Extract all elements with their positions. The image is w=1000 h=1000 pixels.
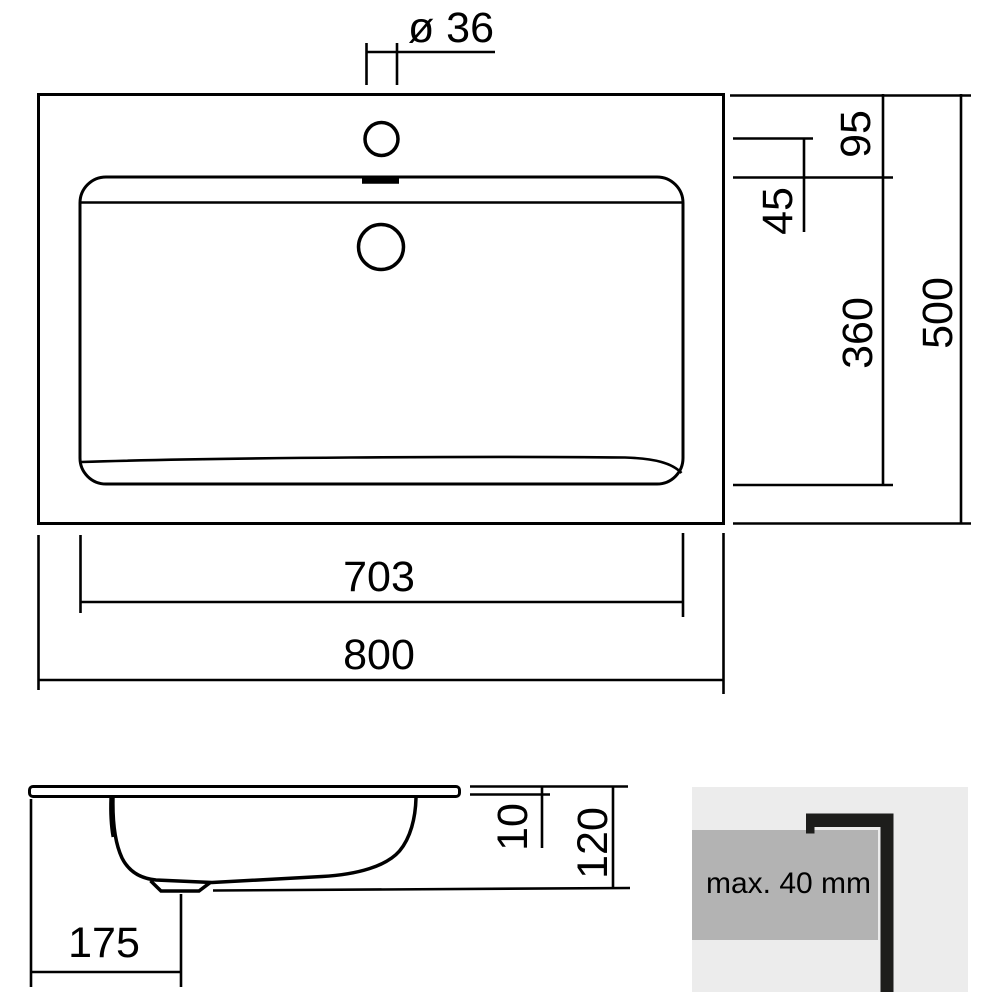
washbasin-technical-drawing: ø 36 45 95 360 500 703 800 [0,0,1000,1000]
label-120: 120 [569,807,617,879]
label-95: 95 [832,110,880,158]
rim-slab [30,787,460,797]
dim-side-view: 175 10 120 [31,787,628,988]
label-703: 703 [343,553,415,601]
dim-faucet-diameter: ø 36 [367,4,496,85]
faucet-hole [365,123,398,156]
label-max-40mm: max. 40 mm [706,867,871,900]
detail-inset: max. 40 mm [692,787,968,992]
faucet-diameter-label: ø 36 [408,4,494,52]
dim-bottom: 703 800 [39,533,724,694]
label-45: 45 [754,187,802,235]
label-175: 175 [68,919,140,967]
bowl-profile [113,797,416,883]
dim-right-side: 45 95 360 500 [730,94,971,524]
ext-bowl-bottom [213,888,630,891]
label-10: 10 [489,803,537,851]
side-view [30,787,631,892]
label-800: 800 [343,631,415,679]
label-360: 360 [834,297,882,369]
label-500: 500 [914,277,962,349]
top-view [39,95,724,524]
overflow-hole [359,225,404,270]
drawing-canvas: ø 36 45 95 360 500 703 800 [0,0,1000,1000]
